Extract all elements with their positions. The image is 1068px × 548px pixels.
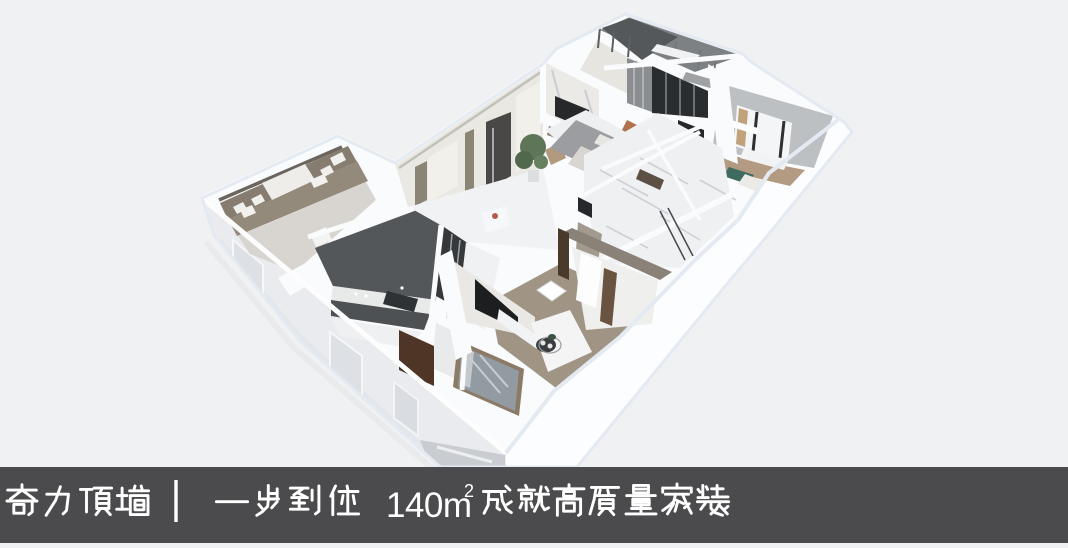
svg-text:140m: 140m	[386, 486, 472, 525]
svg-text:2: 2	[464, 481, 474, 501]
